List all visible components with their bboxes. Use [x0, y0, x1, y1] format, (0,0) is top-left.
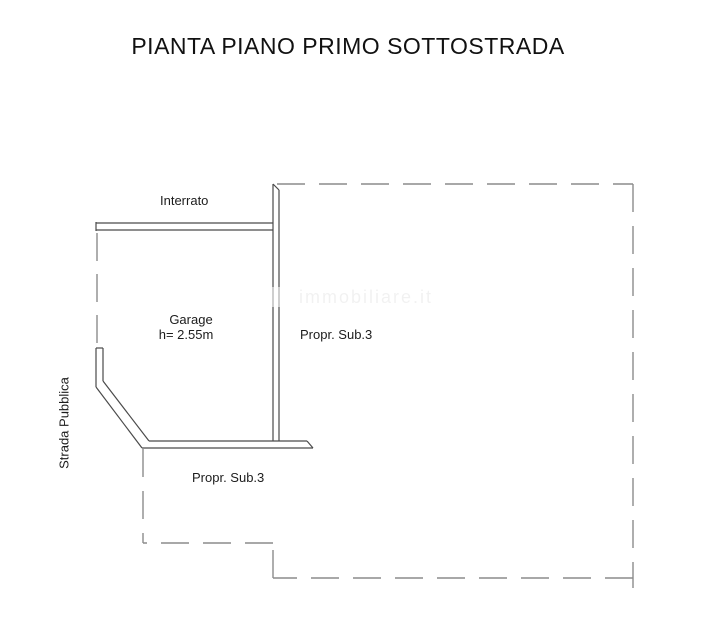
boundary-dashed-outline [143, 184, 633, 588]
page-title: PIANTA PIANO PRIMO SOTTOSTRADA [131, 33, 564, 60]
floor-plan-page: immobiliare.it PIANTA PIANO PRIMO SOTTOS… [0, 0, 713, 621]
label-propr-sub3-bottom: Propr. Sub.3 [192, 471, 264, 484]
label-strada-pubblica: Strada Pubblica [57, 377, 72, 469]
watermark: immobiliare.it [238, 287, 494, 307]
label-interrato: Interrato [160, 194, 208, 207]
watermark-text: immobiliare.it [299, 287, 433, 307]
floor-plan-drawing [0, 0, 713, 621]
label-garage-height: h= 2.55m [159, 328, 214, 341]
label-garage: Garage [169, 313, 212, 326]
label-propr-sub3-right: Propr. Sub.3 [300, 328, 372, 341]
